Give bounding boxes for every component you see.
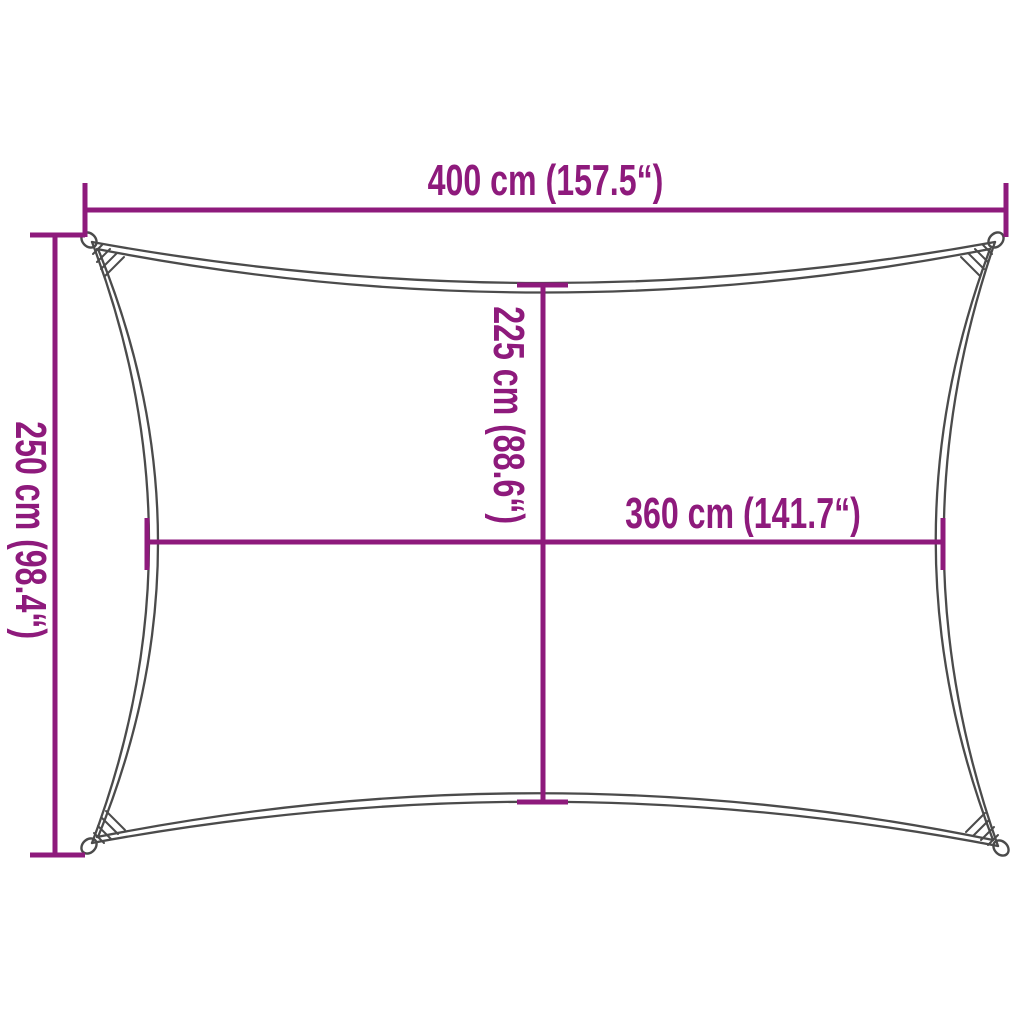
sail-edge-left-outer (92, 242, 149, 843)
dimension-label-left-height: 250 cm (98.4“) (8, 304, 52, 757)
sail-edge-bottom-outer (92, 802, 998, 846)
dimension-label-inner-width: 360 cm (141.7“) (597, 490, 889, 538)
dimension-label-top-width: 400 cm (157.5“) (209, 157, 881, 205)
corner-loop-top-right (985, 229, 1006, 250)
dimension-label-inner-height: 225 cm (88.6“) (486, 324, 530, 507)
sail-edge-right-outer (944, 242, 998, 846)
corner-lashing-top-left (93, 245, 124, 276)
sail-edge-top-outer (92, 242, 995, 283)
corner-lashing-top-right (961, 245, 992, 276)
shade-sail-dimension-diagram: 400 cm (157.5“) 250 cm (98.4“) 225 cm (8… (0, 0, 1024, 1024)
